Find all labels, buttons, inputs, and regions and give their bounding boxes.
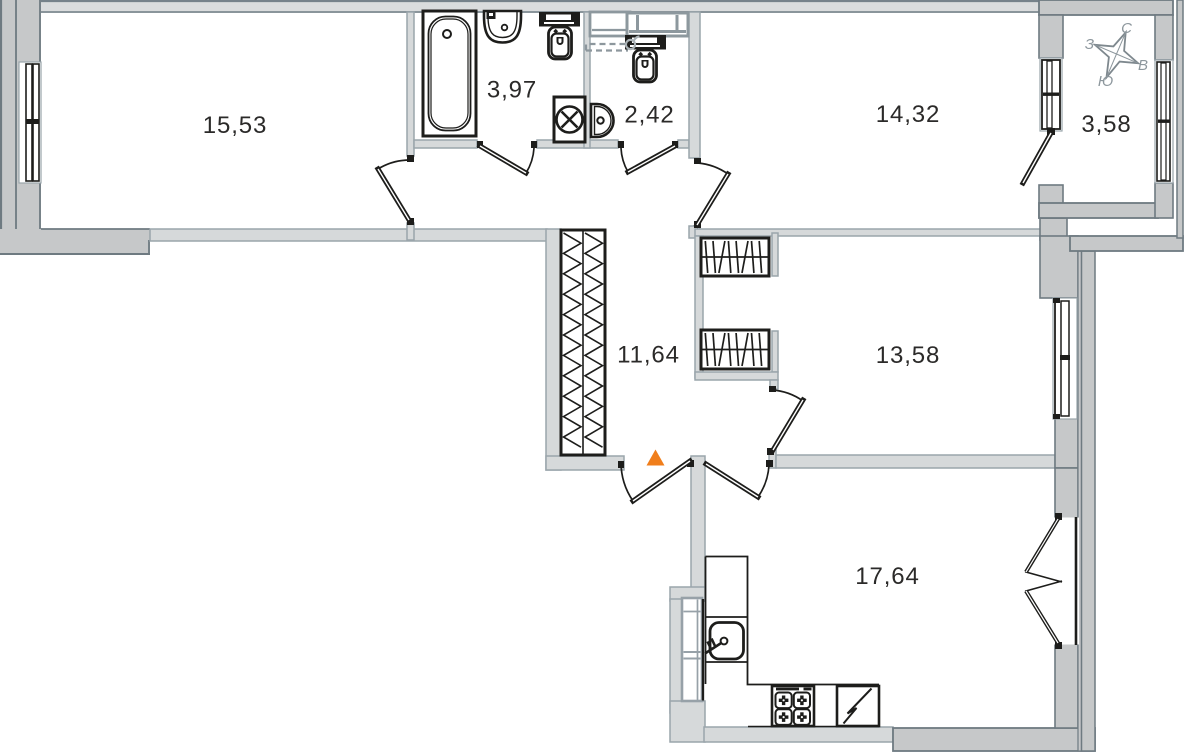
svg-text:Ю: Ю — [1098, 73, 1113, 90]
svg-text:3,58: 3,58 — [1081, 111, 1131, 138]
svg-text:17,64: 17,64 — [855, 563, 920, 590]
svg-text:С: С — [1121, 20, 1132, 37]
svg-text:З: З — [1085, 36, 1094, 53]
svg-text:2,42: 2,42 — [624, 102, 674, 129]
svg-text:15,53: 15,53 — [203, 112, 268, 139]
svg-text:14,32: 14,32 — [876, 101, 941, 128]
svg-text:3,97: 3,97 — [487, 77, 537, 104]
svg-text:В: В — [1138, 57, 1148, 74]
svg-text:13,58: 13,58 — [876, 342, 941, 369]
svg-text:11,64: 11,64 — [617, 342, 680, 369]
